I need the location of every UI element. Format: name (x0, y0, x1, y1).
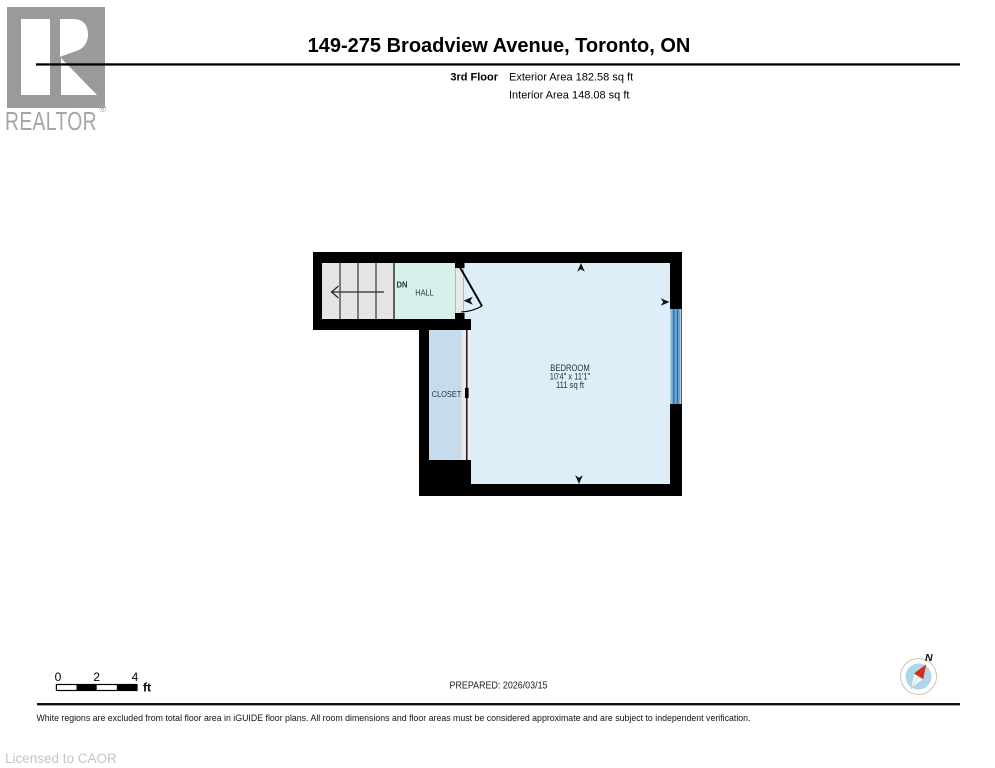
svg-text:HALL: HALL (415, 288, 434, 298)
svg-text:0: 0 (55, 670, 62, 684)
svg-text:CLOSET: CLOSET (432, 389, 462, 399)
svg-text:2: 2 (93, 670, 100, 684)
svg-text:PREPARED: 2026/03/15: PREPARED: 2026/03/15 (450, 680, 548, 692)
svg-text:Licensed to CAOR: Licensed to CAOR (5, 751, 117, 766)
svg-text:DN: DN (397, 281, 408, 290)
svg-text:4: 4 (132, 670, 139, 684)
svg-text:Exterior Area 182.58 sq ft: Exterior Area 182.58 sq ft (509, 72, 633, 84)
svg-text:111 sq ft: 111 sq ft (556, 380, 584, 390)
svg-text:149-275 Broadview Avenue, Toro: 149-275 Broadview Avenue, Toronto, ON (308, 35, 691, 57)
svg-text:3rd Floor: 3rd Floor (450, 72, 498, 84)
svg-text:ft: ft (143, 681, 151, 695)
svg-text:®: ® (99, 104, 107, 115)
svg-text:REALTOR: REALTOR (5, 106, 97, 136)
svg-text:N: N (925, 652, 933, 664)
svg-text:Interior Area 148.08 sq ft: Interior Area 148.08 sq ft (509, 90, 629, 102)
svg-text:White regions are excluded fro: White regions are excluded from total fl… (37, 713, 751, 723)
